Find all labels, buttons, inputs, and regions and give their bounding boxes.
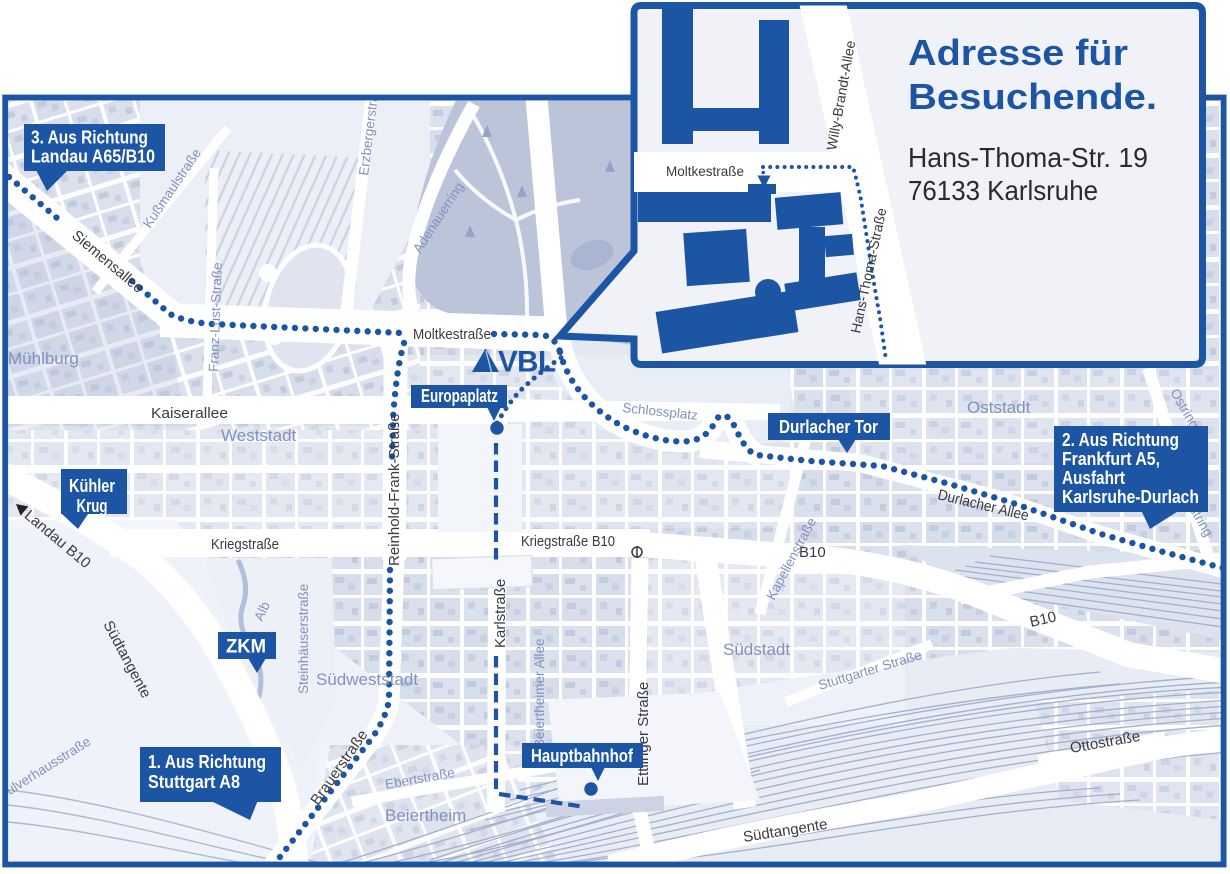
svg-text:76133 Karlsruhe: 76133 Karlsruhe [908,175,1098,206]
svg-text:VBL: VBL [498,346,556,379]
svg-text:Oststadt: Oststadt [967,398,1031,417]
svg-text:Hans-Thoma-Str. 19: Hans-Thoma-Str. 19 [908,142,1148,173]
svg-text:Frankfurt A5,: Frankfurt A5, [1062,449,1160,469]
svg-text:Hauptbahnhof: Hauptbahnhof [531,746,634,766]
svg-text:Karlstraße: Karlstraße [492,579,509,648]
svg-text:Kriegstraße B10: Kriegstraße B10 [521,533,615,550]
svg-text:Moltkestraße: Moltkestraße [413,326,491,343]
svg-text:Kaiserallee: Kaiserallee [151,405,228,422]
svg-text:Besuchende.: Besuchende. [908,76,1157,117]
svg-text:Europaplatz: Europaplatz [421,386,498,406]
svg-text:Stuttgart A8: Stuttgart A8 [148,772,240,792]
svg-text:Steinhäuserstraße: Steinhäuserstraße [296,584,311,694]
svg-text:1. Aus Richtung: 1. Aus Richtung [148,752,266,772]
svg-text:Landau A65/B10: Landau A65/B10 [31,147,155,167]
svg-text:Karlsruhe-Durlach: Karlsruhe-Durlach [1062,487,1199,507]
svg-text:Beiertheim: Beiertheim [385,806,466,825]
svg-text:Südweststadt: Südweststadt [316,670,418,689]
svg-text:Adresse für: Adresse für [908,32,1128,73]
svg-text:Ausfahrt: Ausfahrt [1062,468,1125,488]
svg-text:2. Aus Richtung: 2. Aus Richtung [1062,430,1179,450]
svg-text:Beiertheimer Allee: Beiertheimer Allee [532,638,547,748]
svg-text:Ettlinger Straße: Ettlinger Straße [635,682,652,786]
svg-text:Reinhold-Frank-Straße: Reinhold-Frank-Straße [386,413,403,566]
svg-text:Moltkestraße: Moltkestraße [666,164,744,179]
svg-text:Kriegstraße: Kriegstraße [211,536,279,553]
svg-text:Südstadt: Südstadt [723,640,790,659]
svg-text:Durlacher Tor: Durlacher Tor [779,417,878,437]
svg-text:Kühler: Kühler [69,476,115,496]
svg-text:Weststadt: Weststadt [221,426,297,445]
svg-text:Krug: Krug [77,496,108,516]
svg-text:Mühlburg: Mühlburg [8,349,79,368]
svg-text:ZKM: ZKM [226,636,266,658]
svg-text:3. Aus Richtung: 3. Aus Richtung [31,128,148,148]
